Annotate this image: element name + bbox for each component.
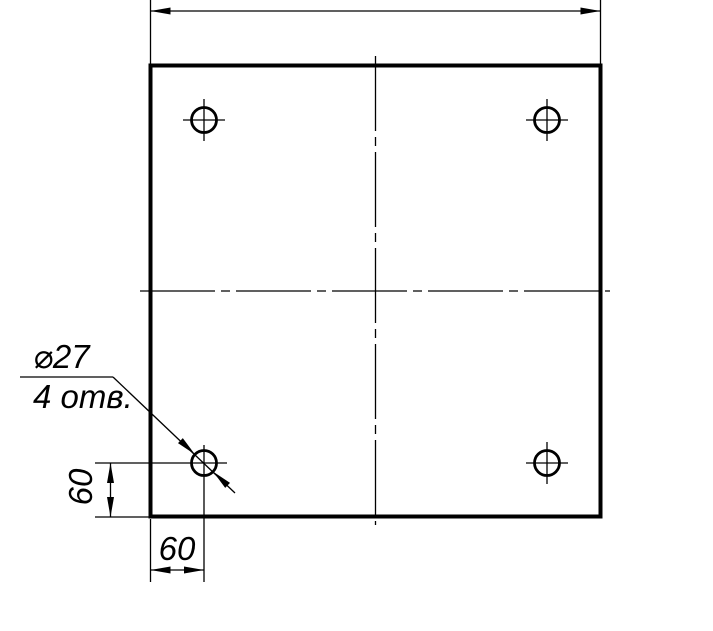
hole-bottom-right [526, 442, 568, 484]
hole-top-right [526, 99, 568, 141]
dimension-top-width [151, 0, 601, 64]
arrowhead-down-icon [107, 497, 114, 517]
arrowhead-up-icon [107, 463, 114, 483]
arrowhead-left-icon [151, 567, 171, 574]
hole-callout: ⌀27 4 отв. [20, 338, 235, 493]
hole-top-left [183, 99, 225, 141]
arrowhead-left-icon [151, 8, 171, 15]
arrowhead-right-icon [184, 567, 204, 574]
dimension-value: 60 [62, 468, 99, 505]
arrowhead-right-icon [581, 8, 601, 15]
dimension-bottom-60: 60 [151, 519, 205, 582]
callout-count-label: 4 отв. [33, 378, 133, 415]
technical-drawing-canvas: ⌀27 4 отв. 60 60 [0, 0, 713, 631]
callout-diameter-label: ⌀27 [33, 338, 91, 375]
dimension-left-60: 60 [62, 463, 150, 517]
plate-drawing: ⌀27 4 отв. 60 60 [0, 0, 713, 631]
dimension-value: 60 [159, 530, 196, 567]
